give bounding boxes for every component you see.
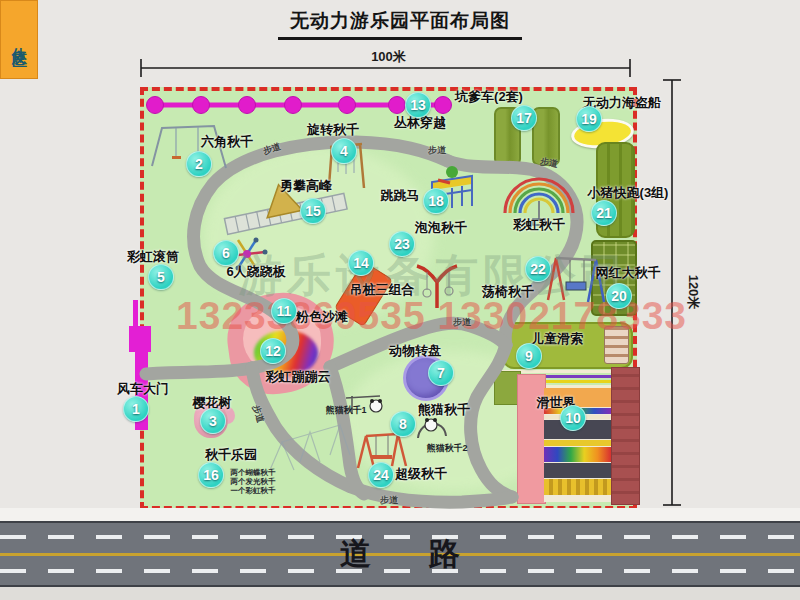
walkway-label-4: 步道 <box>249 403 267 424</box>
attraction-badge-12: 12 <box>260 338 286 364</box>
attraction-label-1: 风车大门 <box>117 380 169 398</box>
walkway-label-6: 步道 <box>453 316 471 329</box>
attraction-badge-14: 14 <box>348 250 374 276</box>
attraction-badge-8: 8 <box>390 411 416 437</box>
walkway-label-5: 步道 <box>380 494 398 507</box>
attraction-label-8: 熊猫秋千 <box>418 401 470 419</box>
attraction-label-4: 旋转秋千 <box>307 121 359 139</box>
attraction-label-22: 荡椅秋千 <box>482 283 534 301</box>
attraction-label-24: 超级秋千 <box>395 465 447 483</box>
attraction-label-21: 小猪快跑(3组) <box>588 184 669 202</box>
panda-swing-sub-label-2: 熊猫秋千2 <box>426 442 467 455</box>
attraction-label-14: 吊桩三组合 <box>350 281 415 299</box>
attraction-badge-19: 19 <box>576 106 602 132</box>
attraction-badge-6: 6 <box>213 240 239 266</box>
attraction-badge-9: 9 <box>516 343 542 369</box>
attraction-label-18: 跳跳马 <box>381 187 420 205</box>
attraction-badge-23: 23 <box>389 231 415 257</box>
attraction-badge-16: 16 <box>198 462 224 488</box>
attraction-label-17: 坑爹车(2套) <box>455 88 523 106</box>
attraction-badge-4: 4 <box>331 138 357 164</box>
attraction-label-9: 儿童滑索 <box>531 330 583 348</box>
attraction-badge-24: 24 <box>368 462 394 488</box>
attraction-badge-20: 20 <box>606 283 632 309</box>
attraction-label-15: 勇攀高峰 <box>280 177 332 195</box>
attraction-badge-18: 18 <box>423 188 449 214</box>
walkway-label-2: 步道 <box>428 144 446 157</box>
attraction-badge-3: 3 <box>200 408 226 434</box>
attraction-badge-15: 15 <box>300 198 326 224</box>
attraction-badge-17: 17 <box>511 105 537 131</box>
attraction-badge-5: 5 <box>148 264 174 290</box>
labels-layer: 1风车大门2六角秋千3樱花树4旋转秋千5彩虹滚筒66人跷跷板7动物转盘8熊猫秋千… <box>0 0 800 600</box>
attraction-label-12: 彩虹蹦蹦云 <box>266 368 331 386</box>
panda-swing-sub-label-1: 熊猫秋千1 <box>325 404 366 417</box>
swing-park-subline-3: 一个彩虹秋千 <box>231 486 276 496</box>
attraction-label-7: 动物转盘 <box>389 342 441 360</box>
attraction-label-5: 彩虹滚筒 <box>127 248 179 266</box>
attraction-badge-11: 11 <box>271 298 297 324</box>
walkway-label-3: 步道 <box>539 155 559 171</box>
attraction-label-2: 六角秋千 <box>201 133 253 151</box>
attraction-label-11: 粉色沙滩 <box>296 308 348 326</box>
attraction-badge-22: 22 <box>525 256 551 282</box>
attraction-badge-21: 21 <box>591 200 617 226</box>
attraction-label-23: 泡泡秋千 <box>415 219 467 237</box>
attraction-badge-1: 1 <box>123 396 149 422</box>
attraction-label-6: 6人跷跷板 <box>226 263 285 281</box>
screenshot-root: 无动力游乐园平面布局图 100米 120米 休息区 <box>0 0 800 600</box>
attraction-badge-13: 13 <box>405 92 431 118</box>
attraction-label-20: 网红大秋千 <box>596 264 661 282</box>
walkway-label-1: 步道 <box>261 140 282 158</box>
attraction-badge-7: 7 <box>428 360 454 386</box>
attraction-badge-10: 10 <box>560 405 586 431</box>
attraction-badge-2: 2 <box>186 151 212 177</box>
